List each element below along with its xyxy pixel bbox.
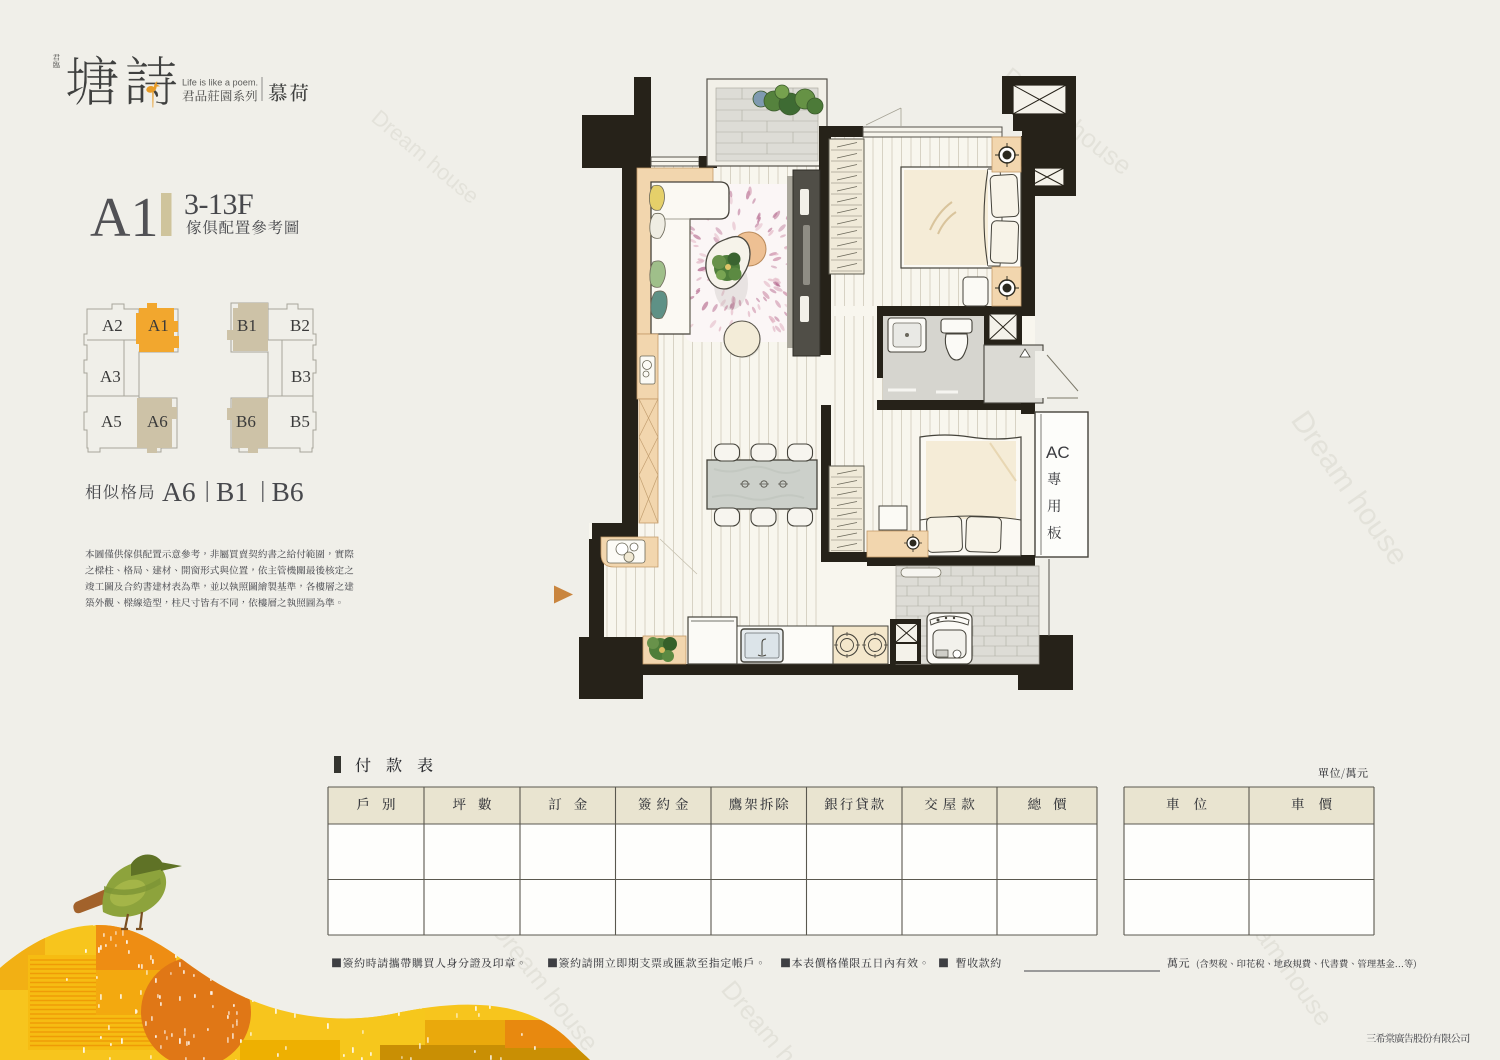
svg-text:Dream house: Dream house xyxy=(367,105,484,209)
svg-text:Dream house: Dream house xyxy=(715,975,838,1060)
svg-text:A1: A1 xyxy=(148,316,169,335)
svg-text:B5: B5 xyxy=(290,412,310,431)
svg-text:A6: A6 xyxy=(162,476,196,507)
svg-text:B1: B1 xyxy=(216,476,248,507)
svg-text:AC: AC xyxy=(1046,443,1070,462)
svg-text:B6: B6 xyxy=(236,412,256,431)
svg-text:Dream house: Dream house xyxy=(1284,405,1414,571)
svg-text:A5: A5 xyxy=(101,412,122,431)
svg-text:B6: B6 xyxy=(272,476,304,507)
svg-text:A2: A2 xyxy=(102,316,123,335)
svg-text:3-13F: 3-13F xyxy=(184,188,253,221)
svg-text:A6: A6 xyxy=(147,412,168,431)
svg-text:A1: A1 xyxy=(90,187,158,249)
svg-text:B3: B3 xyxy=(291,367,311,386)
svg-text:Life is like a poem.: Life is like a poem. xyxy=(182,78,258,88)
svg-text:A3: A3 xyxy=(100,367,121,386)
svg-text:B2: B2 xyxy=(290,316,310,335)
svg-text:B1: B1 xyxy=(237,316,257,335)
